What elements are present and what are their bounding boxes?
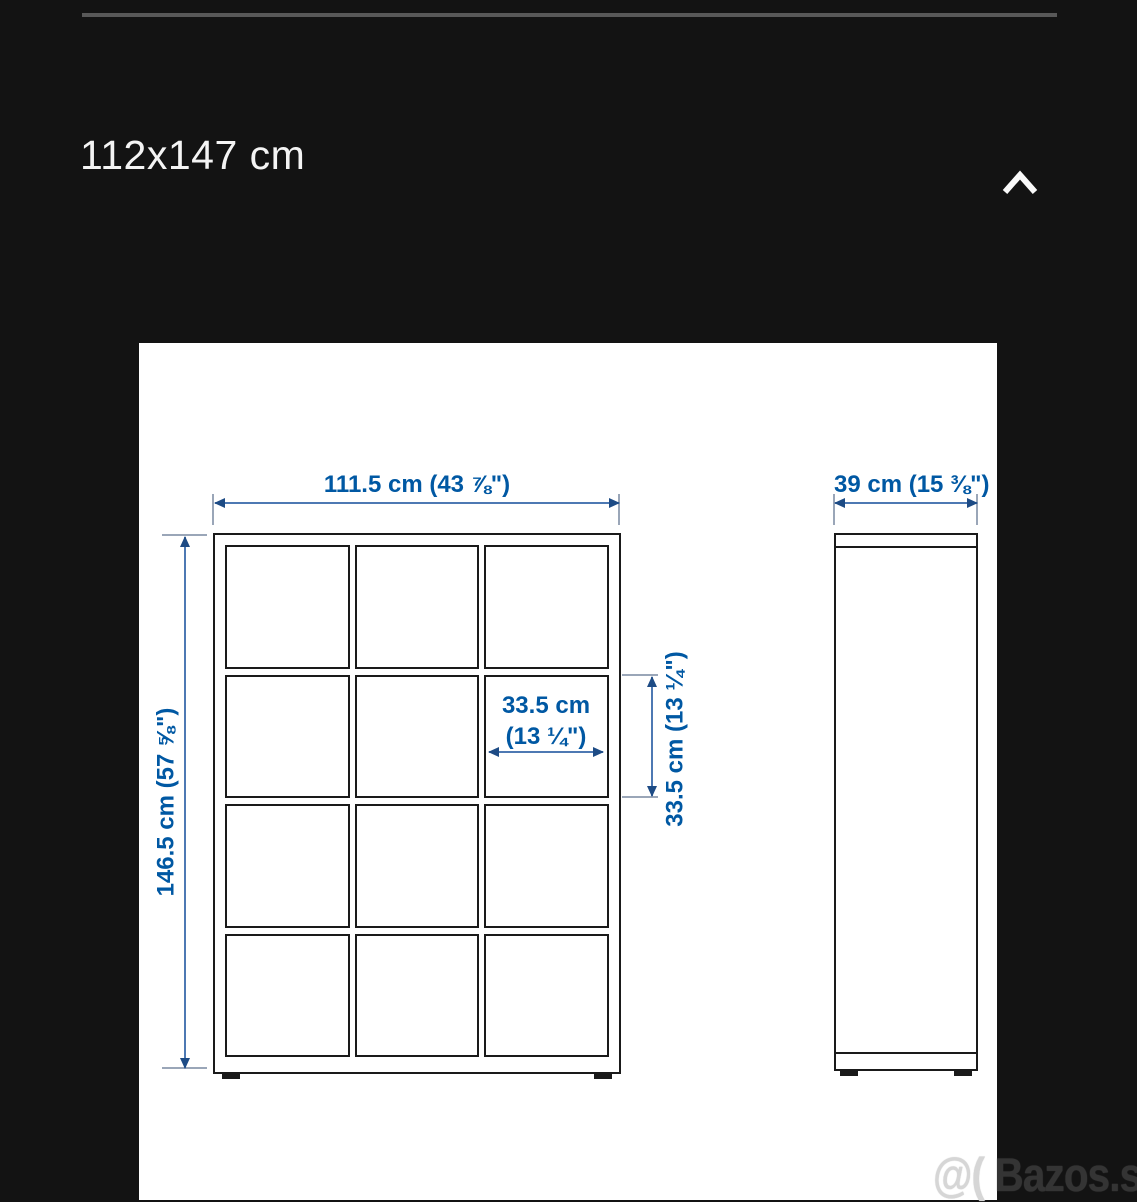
side-view bbox=[834, 533, 978, 1071]
chevron-up-icon bbox=[999, 187, 1041, 202]
front-width-label: 111.5 cm (43 ⅞") bbox=[213, 469, 621, 500]
side-depth-label: 39 cm (15 ⅜") bbox=[834, 469, 978, 500]
arrowhead-right-icon bbox=[593, 747, 604, 757]
shelf-foot bbox=[840, 1071, 858, 1076]
shelf-compartment bbox=[225, 545, 350, 669]
front-height-arrow bbox=[184, 537, 186, 1068]
watermark-site: Bazos.sk bbox=[995, 1148, 1137, 1201]
side-top-panel-line bbox=[836, 546, 976, 548]
arrowhead-down-icon bbox=[180, 1058, 190, 1069]
cell-height-arrow bbox=[651, 677, 653, 796]
shelf-foot bbox=[594, 1074, 612, 1079]
front-view-grid bbox=[213, 533, 621, 1074]
shelf-foot bbox=[222, 1074, 240, 1079]
arrowhead-right-icon bbox=[967, 498, 978, 508]
shelf-compartment bbox=[355, 545, 480, 669]
watermark: @( Bazos.sk bbox=[933, 1147, 1137, 1202]
side-bottom-panel-line bbox=[836, 1052, 976, 1054]
arrowhead-left-icon bbox=[214, 498, 225, 508]
shelf-compartment bbox=[355, 804, 480, 928]
cell-width-arrow bbox=[489, 751, 603, 753]
cell-width-label: 33.5 cm (13 ¼") bbox=[502, 690, 590, 752]
shelf-compartment bbox=[355, 675, 480, 799]
side-depth-arrow bbox=[835, 502, 977, 504]
shelf-compartment bbox=[355, 934, 480, 1058]
shelf-compartment bbox=[484, 545, 609, 669]
arrowhead-left-icon bbox=[488, 747, 499, 757]
arrowhead-up-icon bbox=[180, 536, 190, 547]
shelf-compartment bbox=[484, 934, 609, 1058]
collapse-button[interactable] bbox=[999, 167, 1041, 199]
front-width-arrow bbox=[215, 502, 619, 504]
page-title: 112x147 cm bbox=[80, 133, 305, 178]
arrowhead-right-icon bbox=[609, 498, 620, 508]
watermark-prefix: @( bbox=[933, 1148, 995, 1201]
shelf-compartment bbox=[225, 934, 350, 1058]
shelf-compartment bbox=[225, 675, 350, 799]
shelf-compartment bbox=[225, 804, 350, 928]
arrowhead-left-icon bbox=[834, 498, 845, 508]
front-height-label: 146.5 cm (57 ⅝") bbox=[151, 708, 182, 897]
arrowhead-down-icon bbox=[647, 786, 657, 797]
shelf-compartment bbox=[484, 804, 609, 928]
top-divider bbox=[82, 13, 1057, 17]
shelf-foot bbox=[954, 1071, 972, 1076]
arrowhead-up-icon bbox=[647, 676, 657, 687]
cell-height-label: 33.5 cm (13 ¼") bbox=[660, 651, 691, 826]
product-dimension-image[interactable]: 111.5 cm (43 ⅞") 146.5 cm (57 ⅝") 33.5 c… bbox=[139, 343, 997, 1200]
